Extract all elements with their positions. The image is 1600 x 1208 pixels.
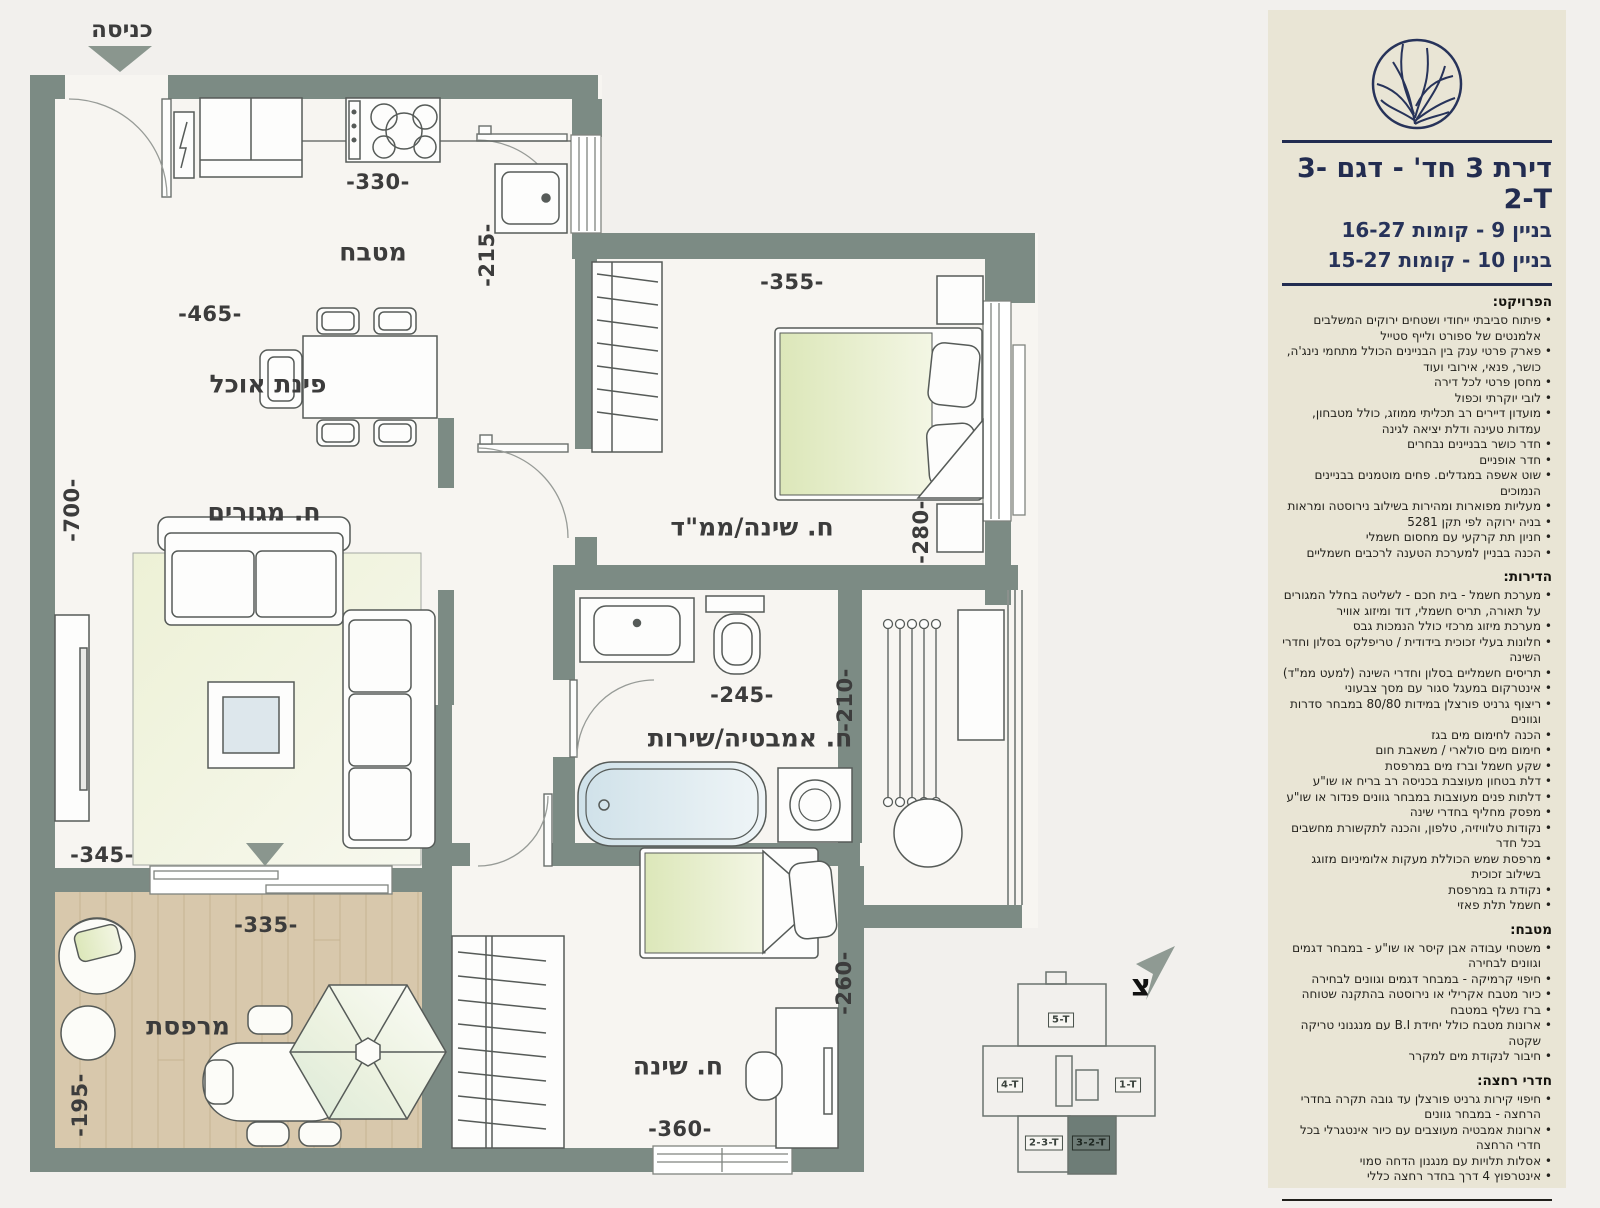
room-label-dining: פינת אוכל: [210, 370, 327, 399]
info-sidebar: דירת 3 חד' - דגם 3-2-T בניין 9 - קומות 1…: [1268, 10, 1566, 1188]
dim-living-width: -345-: [70, 843, 134, 867]
dim-bedroom2-depth: -260-: [832, 951, 856, 1015]
spec-item: דלתות פנים מעוצבות במבחר גוונים פנדור או…: [1282, 790, 1552, 806]
spec-item: אינטרפוץ 4 דרך בחדר רחצה כללי: [1282, 1169, 1552, 1185]
dim-balcony-depth: -195-: [68, 1073, 92, 1137]
dim-bath-width: -245-: [710, 683, 774, 707]
spec-item: אינטרקום במעגל סגור עם מסך צבעוני: [1282, 681, 1552, 697]
spec-item: חדר כושר בבניינים נבחרים: [1282, 437, 1552, 453]
dim-bedroom2-width: -360-: [648, 1117, 712, 1141]
armchair-couch-icon: [343, 610, 435, 848]
dim-dining-width: -465-: [178, 302, 242, 326]
sofa-icon: [158, 517, 350, 625]
balcony-chair: [205, 1060, 233, 1104]
dim-kitchen-depth: -215-: [475, 223, 499, 287]
spec-item: שוט אשפה במגדלים. פחים מוטמנים בבניינים …: [1282, 468, 1552, 499]
spec-item: חדר אופניים: [1282, 453, 1552, 469]
spec-item: מחסן פרטי לכל דירה: [1282, 375, 1552, 391]
single-bed-icon: [640, 848, 838, 958]
north-label: צ: [1131, 969, 1151, 1004]
spec-item: הכנה בבניין למערכת הטענה לרכבים חשמליים: [1282, 546, 1552, 562]
keyplan-unit-1T: 1-T: [1115, 1078, 1141, 1093]
entrance-arrow-icon: [88, 46, 152, 72]
spec-item: מערכת מיזוג מרכזי כולל הנמכות גבס: [1282, 619, 1552, 635]
spec-item: לובי יוקרתי וכפול: [1282, 391, 1552, 407]
section-project: הפרויקט: פיתוח סביבתי ייחודי ושטחים ירוק…: [1282, 294, 1552, 561]
room-label-bedroom2: ח. שינה: [633, 1052, 723, 1081]
side-table-icon: [61, 1006, 115, 1060]
utility-cabinet: [958, 610, 1004, 740]
closet-icon: [452, 936, 564, 1148]
room-label-kitchen: מטבח: [339, 238, 407, 267]
washing-machine-icon: [778, 768, 852, 842]
spec-item: חניון תת קרקעי עם מחסום חשמלי: [1282, 530, 1552, 546]
double-bed-icon: [775, 328, 983, 500]
section-apartments: הדירות: מערכת חשמל - בית חכם - לשליטה בח…: [1282, 569, 1552, 914]
dim-living-height: -700-: [60, 478, 84, 542]
spec-item: נקודת גז במרפסת: [1282, 883, 1552, 899]
coffee-table-icon: [208, 682, 294, 768]
spec-item: בניה ירוקה לפי תקן 5281: [1282, 515, 1552, 531]
floor-plan: כניסה מטבח פינת אוכל ח. מגורים ח. שינה/מ…: [0, 0, 1240, 1208]
spec-item: פארק פרטי ענק בין הבניינים הכולל מתחמי נ…: [1282, 344, 1552, 375]
divider: [1282, 1199, 1552, 1201]
divider: [1282, 140, 1552, 143]
spec-item: ארונות מטבח כולל יחידת B.I עם מנגנוני טר…: [1282, 1018, 1552, 1049]
kitchen-sink-icon: [495, 164, 567, 233]
balcony-chair: [247, 1122, 289, 1146]
room-label-living: ח. מגורים: [207, 498, 320, 527]
tv-unit-icon: [55, 615, 89, 821]
entrance-label: כניסה: [91, 17, 153, 43]
section-bathrooms: חדרי רחצה: חיפוי קירות גרניט פורצלן עד ג…: [1282, 1073, 1552, 1185]
spec-item: מועדון דיירים רב תכליתי ממוזג, כולל מטבח…: [1282, 406, 1552, 437]
spec-item: חלונות בעלי זכוכית בידודית / טריפלקס בסל…: [1282, 635, 1552, 666]
electrical-panel-icon: [174, 112, 194, 178]
spec-item: חשמל תלת פאזי: [1282, 898, 1552, 914]
dim-kitchen-width: -330-: [346, 170, 410, 194]
spec-item: תריסים חשמליים בסלון וחדרי השינה (למעט מ…: [1282, 666, 1552, 682]
building-line: בניין 10 - קומות 15-27: [1268, 245, 1566, 275]
section-title: הדירות:: [1282, 569, 1552, 585]
room-label-balcony: מרפסת: [146, 1012, 230, 1041]
brochure-page: כניסה מטבח פינת אוכל ח. מגורים ח. שינה/מ…: [0, 0, 1600, 1208]
spec-item: חימום מים סולארי / משאבת חום: [1282, 743, 1552, 759]
desk-chair-icon: [746, 1052, 782, 1100]
keyplan-unit-32T-highlighted: 3-2-T: [1072, 1136, 1110, 1151]
spec-item: מפסק מחליף בחדרי שינה: [1282, 805, 1552, 821]
spec-item: מערכת חשמל - בית חכם - לשליטה בחלל המגור…: [1282, 588, 1552, 619]
dim-master-depth: -280-: [909, 500, 933, 564]
dim-bath-depth: -210-: [833, 668, 857, 732]
room-label-master: ח. שינה/ממ"ד: [670, 513, 833, 542]
spec-item: כיור מטבח אקרילי או נירוסטה בהתקנה שטוחה: [1282, 987, 1552, 1003]
keyplan-unit-23T: 2-3-T: [1025, 1136, 1063, 1151]
nightstand: [937, 504, 983, 552]
spec-item: חיפוי קרמיקה - במבחר דגמים וגוונים לבחיר…: [1282, 972, 1552, 988]
section-title: הפרויקט:: [1282, 294, 1552, 310]
spec-item: מעליות מפוארות ומהירות בשילוב נירוסטה ומ…: [1282, 499, 1552, 515]
keyplan-unit-5T: 5-T: [1048, 1013, 1074, 1028]
room-label-bathroom: ח. אמבטיה/שירות: [648, 724, 853, 753]
spec-item: דלת בטחון מעוצבת בכניסה רב בריח או שו"ע: [1282, 774, 1552, 790]
section-kitchen: מטבח: משטחי עבודה אבן קיסר או שו"ע - במב…: [1282, 922, 1552, 1065]
dim-master-width: -355-: [760, 270, 824, 294]
closet-icon: [592, 262, 662, 452]
apartment-type: דירת 3 חד' - דגם: [1336, 153, 1552, 184]
spec-sections: הפרויקט: פיתוח סביבתי ייחודי ושטחים ירוק…: [1268, 294, 1566, 1185]
brand-logo-icon: [1369, 36, 1465, 132]
dim-balcony-width: -335-: [234, 913, 298, 937]
bathtub-icon: [578, 762, 766, 846]
spec-item: פיתוח סביבתי ייחודי ושטחים ירוקים המשלבי…: [1282, 313, 1552, 344]
stove-icon: [346, 98, 440, 162]
spec-item: ארונות אמבטיה מעוצבים עם כיור אינטגרלי ב…: [1282, 1123, 1552, 1154]
vanity-sink-icon: [580, 598, 694, 662]
spec-item: מרפסת שמש הכוללת מעקות אלומיניום מזוגג ב…: [1282, 852, 1552, 883]
lounge-chair-icon: [59, 918, 135, 994]
spec-item: אסלות תלויות עם מנגנון הדחה סמוי: [1282, 1154, 1552, 1170]
spec-item: ריצוף גרניט פורצלן במידות 80/80 במבחר סד…: [1282, 697, 1552, 728]
balcony-chair: [248, 1006, 292, 1034]
building-line: בניין 9 - קומות 16-27: [1268, 215, 1566, 245]
boiler-icon: [894, 799, 962, 867]
page-title: דירת 3 חד' - דגם 3-2-T: [1268, 151, 1566, 215]
spec-item: משטחי עבודה אבן קיסר או שו"ע - במבחר דגמ…: [1282, 941, 1552, 972]
spec-item: הכנה לחימום מים בגז: [1282, 728, 1552, 744]
spec-item: חיבור לנקודת מים למקרר: [1282, 1049, 1552, 1065]
keyplan-unit-4T: 4-T: [997, 1078, 1023, 1093]
spec-item: שקע חשמל וברז מים במרפסת: [1282, 759, 1552, 775]
nightstand: [937, 276, 983, 324]
section-title: מטבח:: [1282, 922, 1552, 938]
section-title: חדרי רחצה:: [1282, 1073, 1552, 1089]
divider: [1282, 283, 1552, 286]
spec-item: נקודות טלוויזיה, טלפון, והכנה לתקשורת מח…: [1282, 821, 1552, 852]
spec-item: חיפוי קירות גרניט פורצלן עד גובה תקרה בח…: [1282, 1092, 1552, 1123]
spec-item: ברז נשלף במטבח: [1282, 1003, 1552, 1019]
balcony-chair: [299, 1122, 341, 1146]
